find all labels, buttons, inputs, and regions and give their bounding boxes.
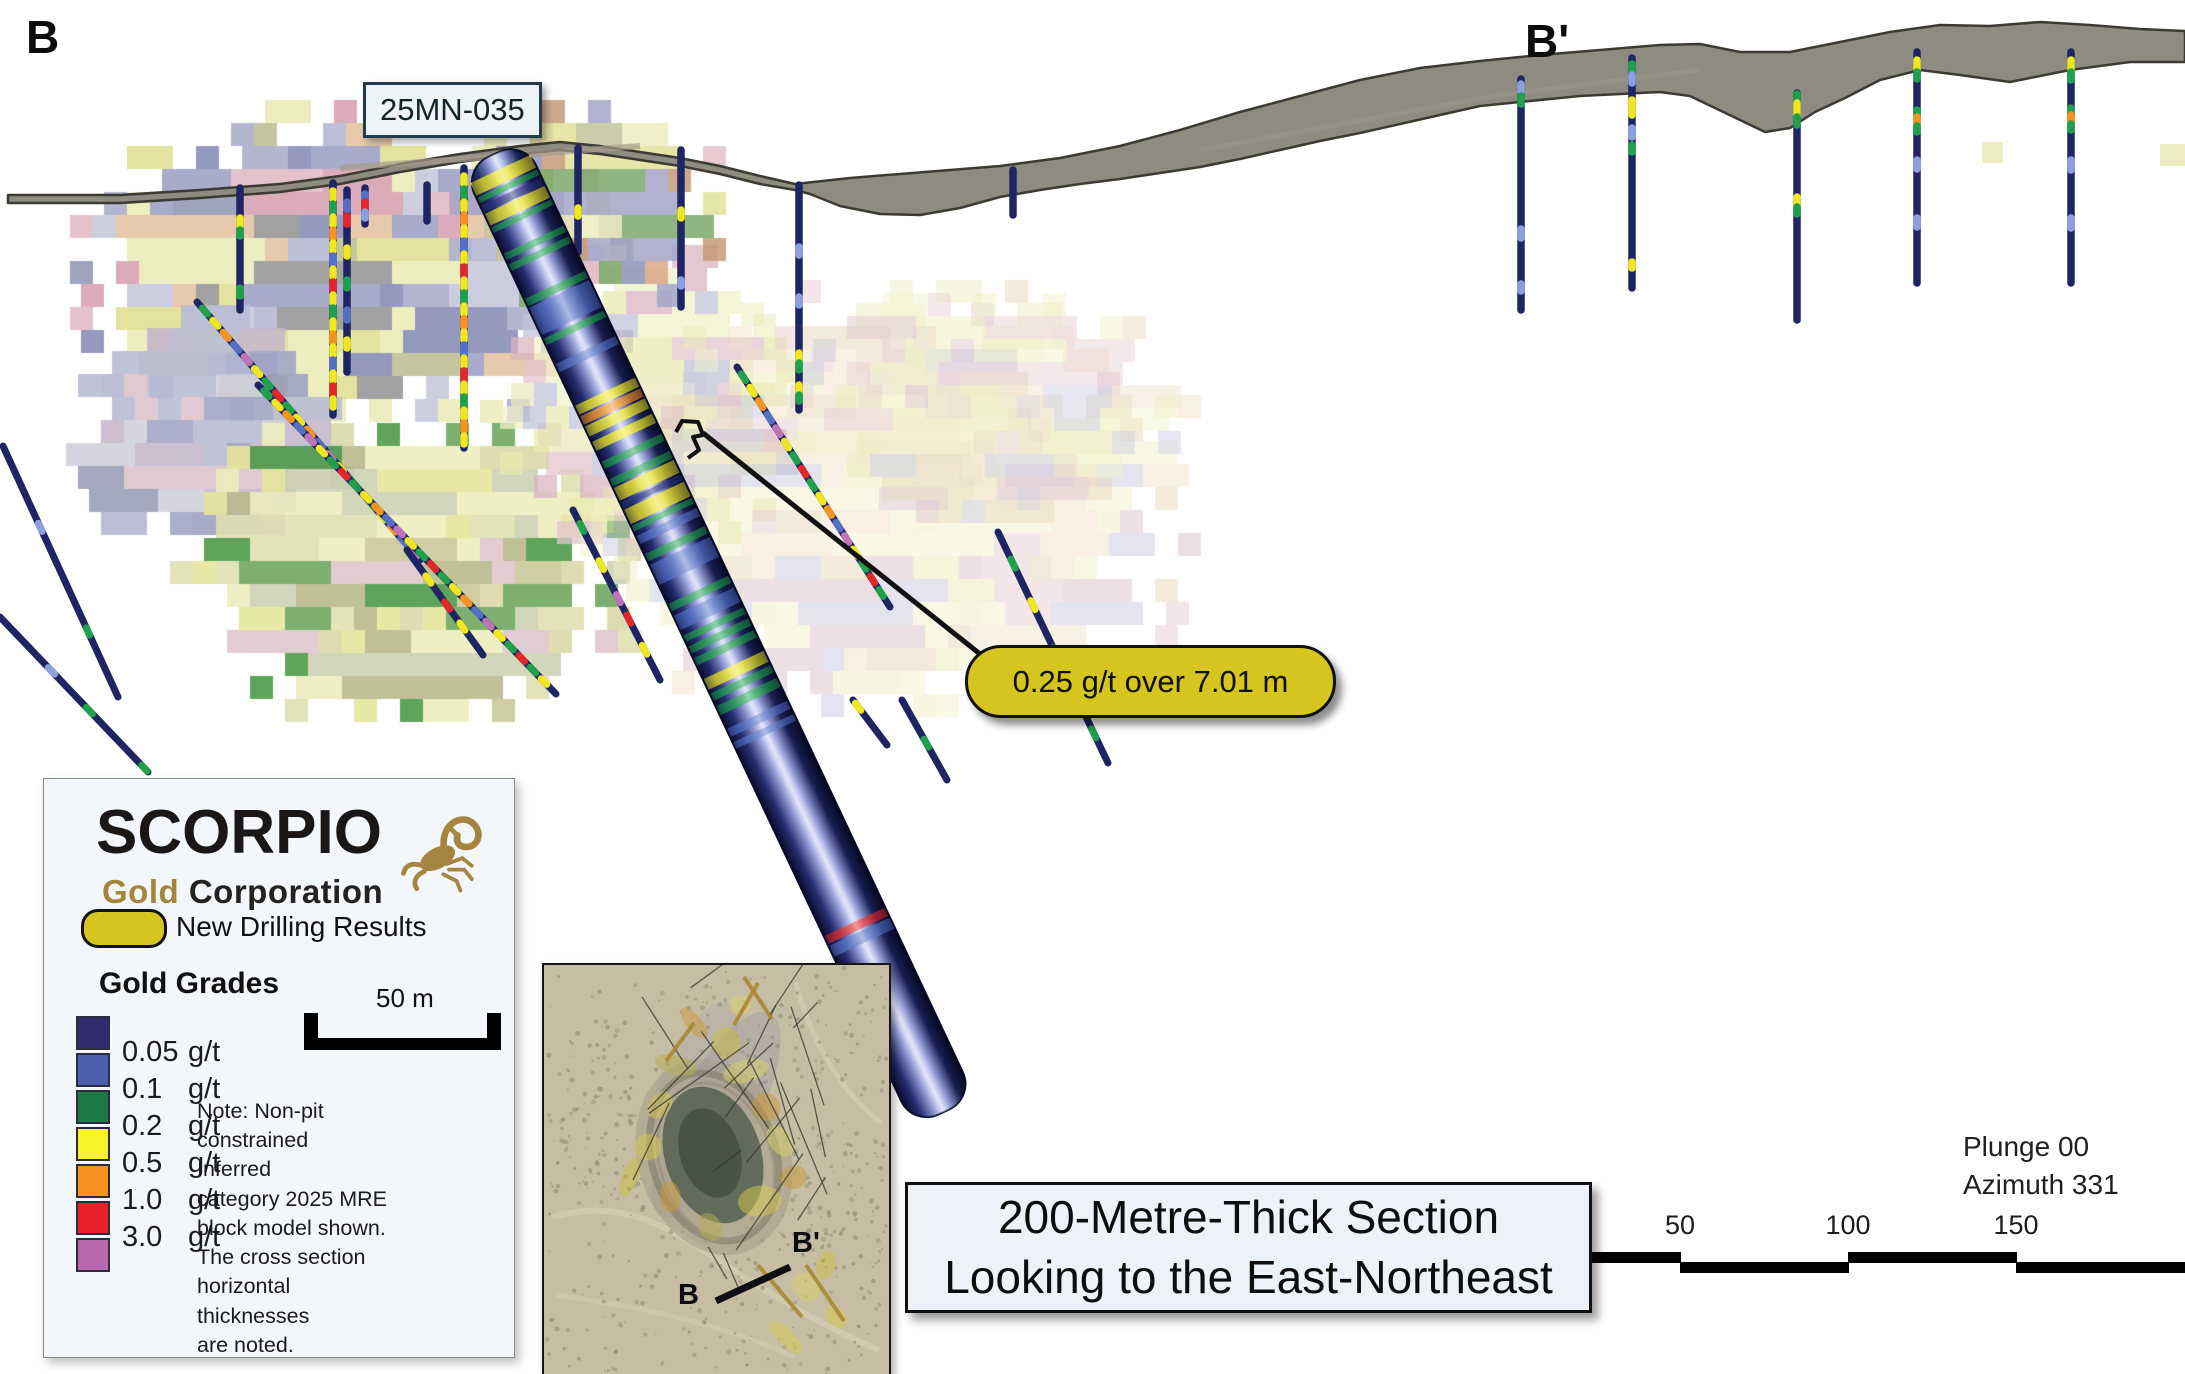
grade-swatches (76, 1016, 110, 1275)
ruler-tick-label: 150 (1976, 1210, 2056, 1241)
interval-bracket (676, 421, 703, 458)
grade-swatch (76, 1238, 110, 1272)
section-title: 200-Metre-Thick Section Looking to the E… (905, 1182, 1592, 1313)
grade-swatch (76, 1090, 110, 1124)
inset-section-b-prime-label: B' (792, 1227, 820, 1260)
scorpion-logo-icon (392, 805, 487, 900)
grade-swatch (76, 1053, 110, 1087)
ruler-tick-label: 100 (1808, 1210, 1888, 1241)
new-drilling-swatch (81, 909, 167, 948)
gold-grades-title: Gold Grades (99, 967, 279, 1001)
legend-panel: SCORPIO Gold Corporation New Drilling Re… (43, 778, 515, 1358)
inset-section-b-label: B (678, 1279, 699, 1312)
section-title-line1: 200-Metre-Thick Section (998, 1188, 1499, 1248)
legend-note: Note: Non-pit constrained Inferred categ… (197, 1097, 387, 1360)
location-inset-map: B B' (542, 963, 891, 1374)
ruler-tick-label: 50 (1640, 1210, 1720, 1241)
grade-label: 0.05g/t (122, 1036, 220, 1069)
drillhole-id-label: 25MN-035 (363, 82, 542, 138)
angled-drillholes (0, 302, 1108, 780)
grade-swatch (76, 1016, 110, 1050)
drill-result-callout: 0.25 g/t over 7.01 m (965, 645, 1336, 718)
grade-swatch (76, 1164, 110, 1198)
ruler-segment (2016, 1262, 2185, 1273)
section-title-line2: Looking to the East-Northeast (944, 1248, 1553, 1308)
view-orientation-info: Plunge 00 Azimuth 331 (1963, 1128, 2119, 1204)
plunge-label: Plunge 00 (1963, 1128, 2119, 1166)
ruler-segment (1848, 1252, 2017, 1263)
grade-swatch (76, 1201, 110, 1235)
company-logo-wordmark: SCORPIO (96, 797, 382, 868)
company-logo-subtitle: Gold Corporation (102, 873, 383, 911)
cross-section-figure: B B' 25MN-035 0.25 g/t over 7.01 m SCORP… (0, 0, 2185, 1374)
scale-bar-label: 50 m (376, 983, 434, 1014)
inset-map-graphic (544, 965, 889, 1374)
azimuth-label: Azimuth 331 (1963, 1166, 2119, 1204)
new-drilling-label: New Drilling Results (176, 909, 427, 942)
scale-bar (304, 1013, 501, 1050)
section-end-label-b-prime: B' (1525, 14, 1569, 68)
ruler-segment (1680, 1262, 1849, 1273)
section-end-label-b: B (26, 10, 59, 64)
grade-swatch (76, 1127, 110, 1161)
